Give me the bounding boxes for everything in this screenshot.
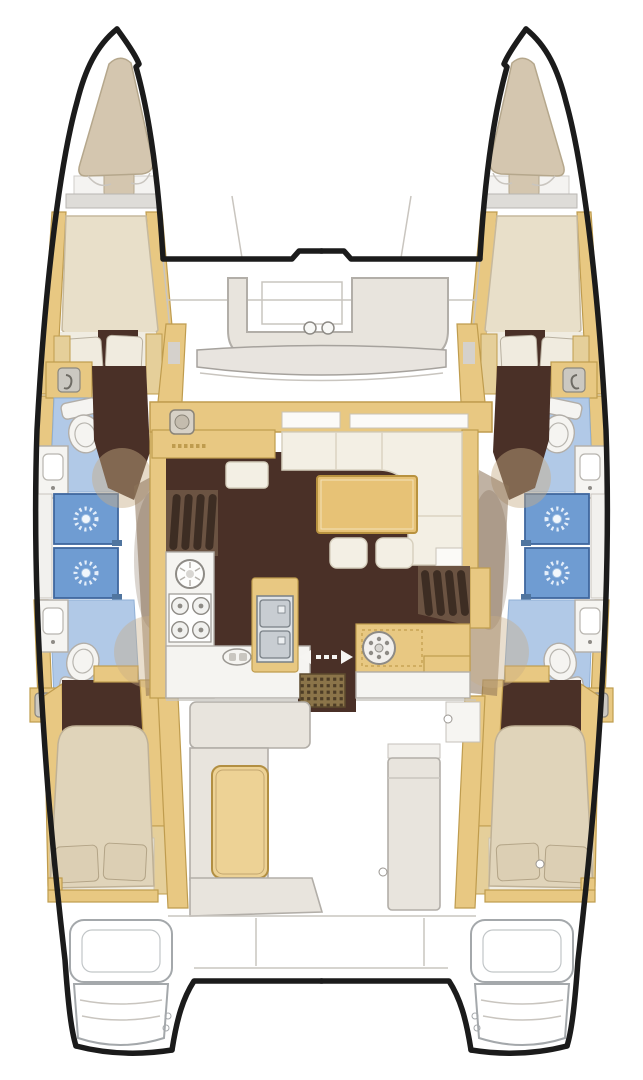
cockpit-bench [190, 702, 310, 748]
companionway-steps-port [166, 490, 218, 556]
saloon-table [317, 476, 417, 533]
aft-bench [190, 878, 322, 916]
deck-drain [536, 860, 544, 868]
sink-island [252, 578, 298, 672]
front-locker [282, 412, 340, 428]
cupholder-icon [322, 322, 334, 334]
ottoman [376, 538, 413, 568]
ottoman [330, 538, 367, 568]
nav-seat [226, 462, 268, 488]
sofa-back-trim [462, 430, 478, 568]
bench-cushion [212, 766, 268, 878]
chart-table [152, 430, 275, 458]
cupholder-icon [304, 322, 316, 334]
front-locker [350, 414, 468, 428]
fridge-counter [356, 624, 470, 698]
deck-drain [444, 715, 452, 723]
saloon-wall [470, 568, 490, 628]
round-sink-icon [176, 560, 204, 588]
cockpit-table [388, 758, 440, 910]
deck-drain [379, 868, 387, 876]
floor-plan-canvas [0, 0, 643, 1080]
deck-hatch-wheel-icon [363, 632, 395, 664]
catamaran-floor-plan [0, 0, 643, 1080]
saloon [150, 402, 492, 712]
windshield-glass [197, 346, 446, 376]
